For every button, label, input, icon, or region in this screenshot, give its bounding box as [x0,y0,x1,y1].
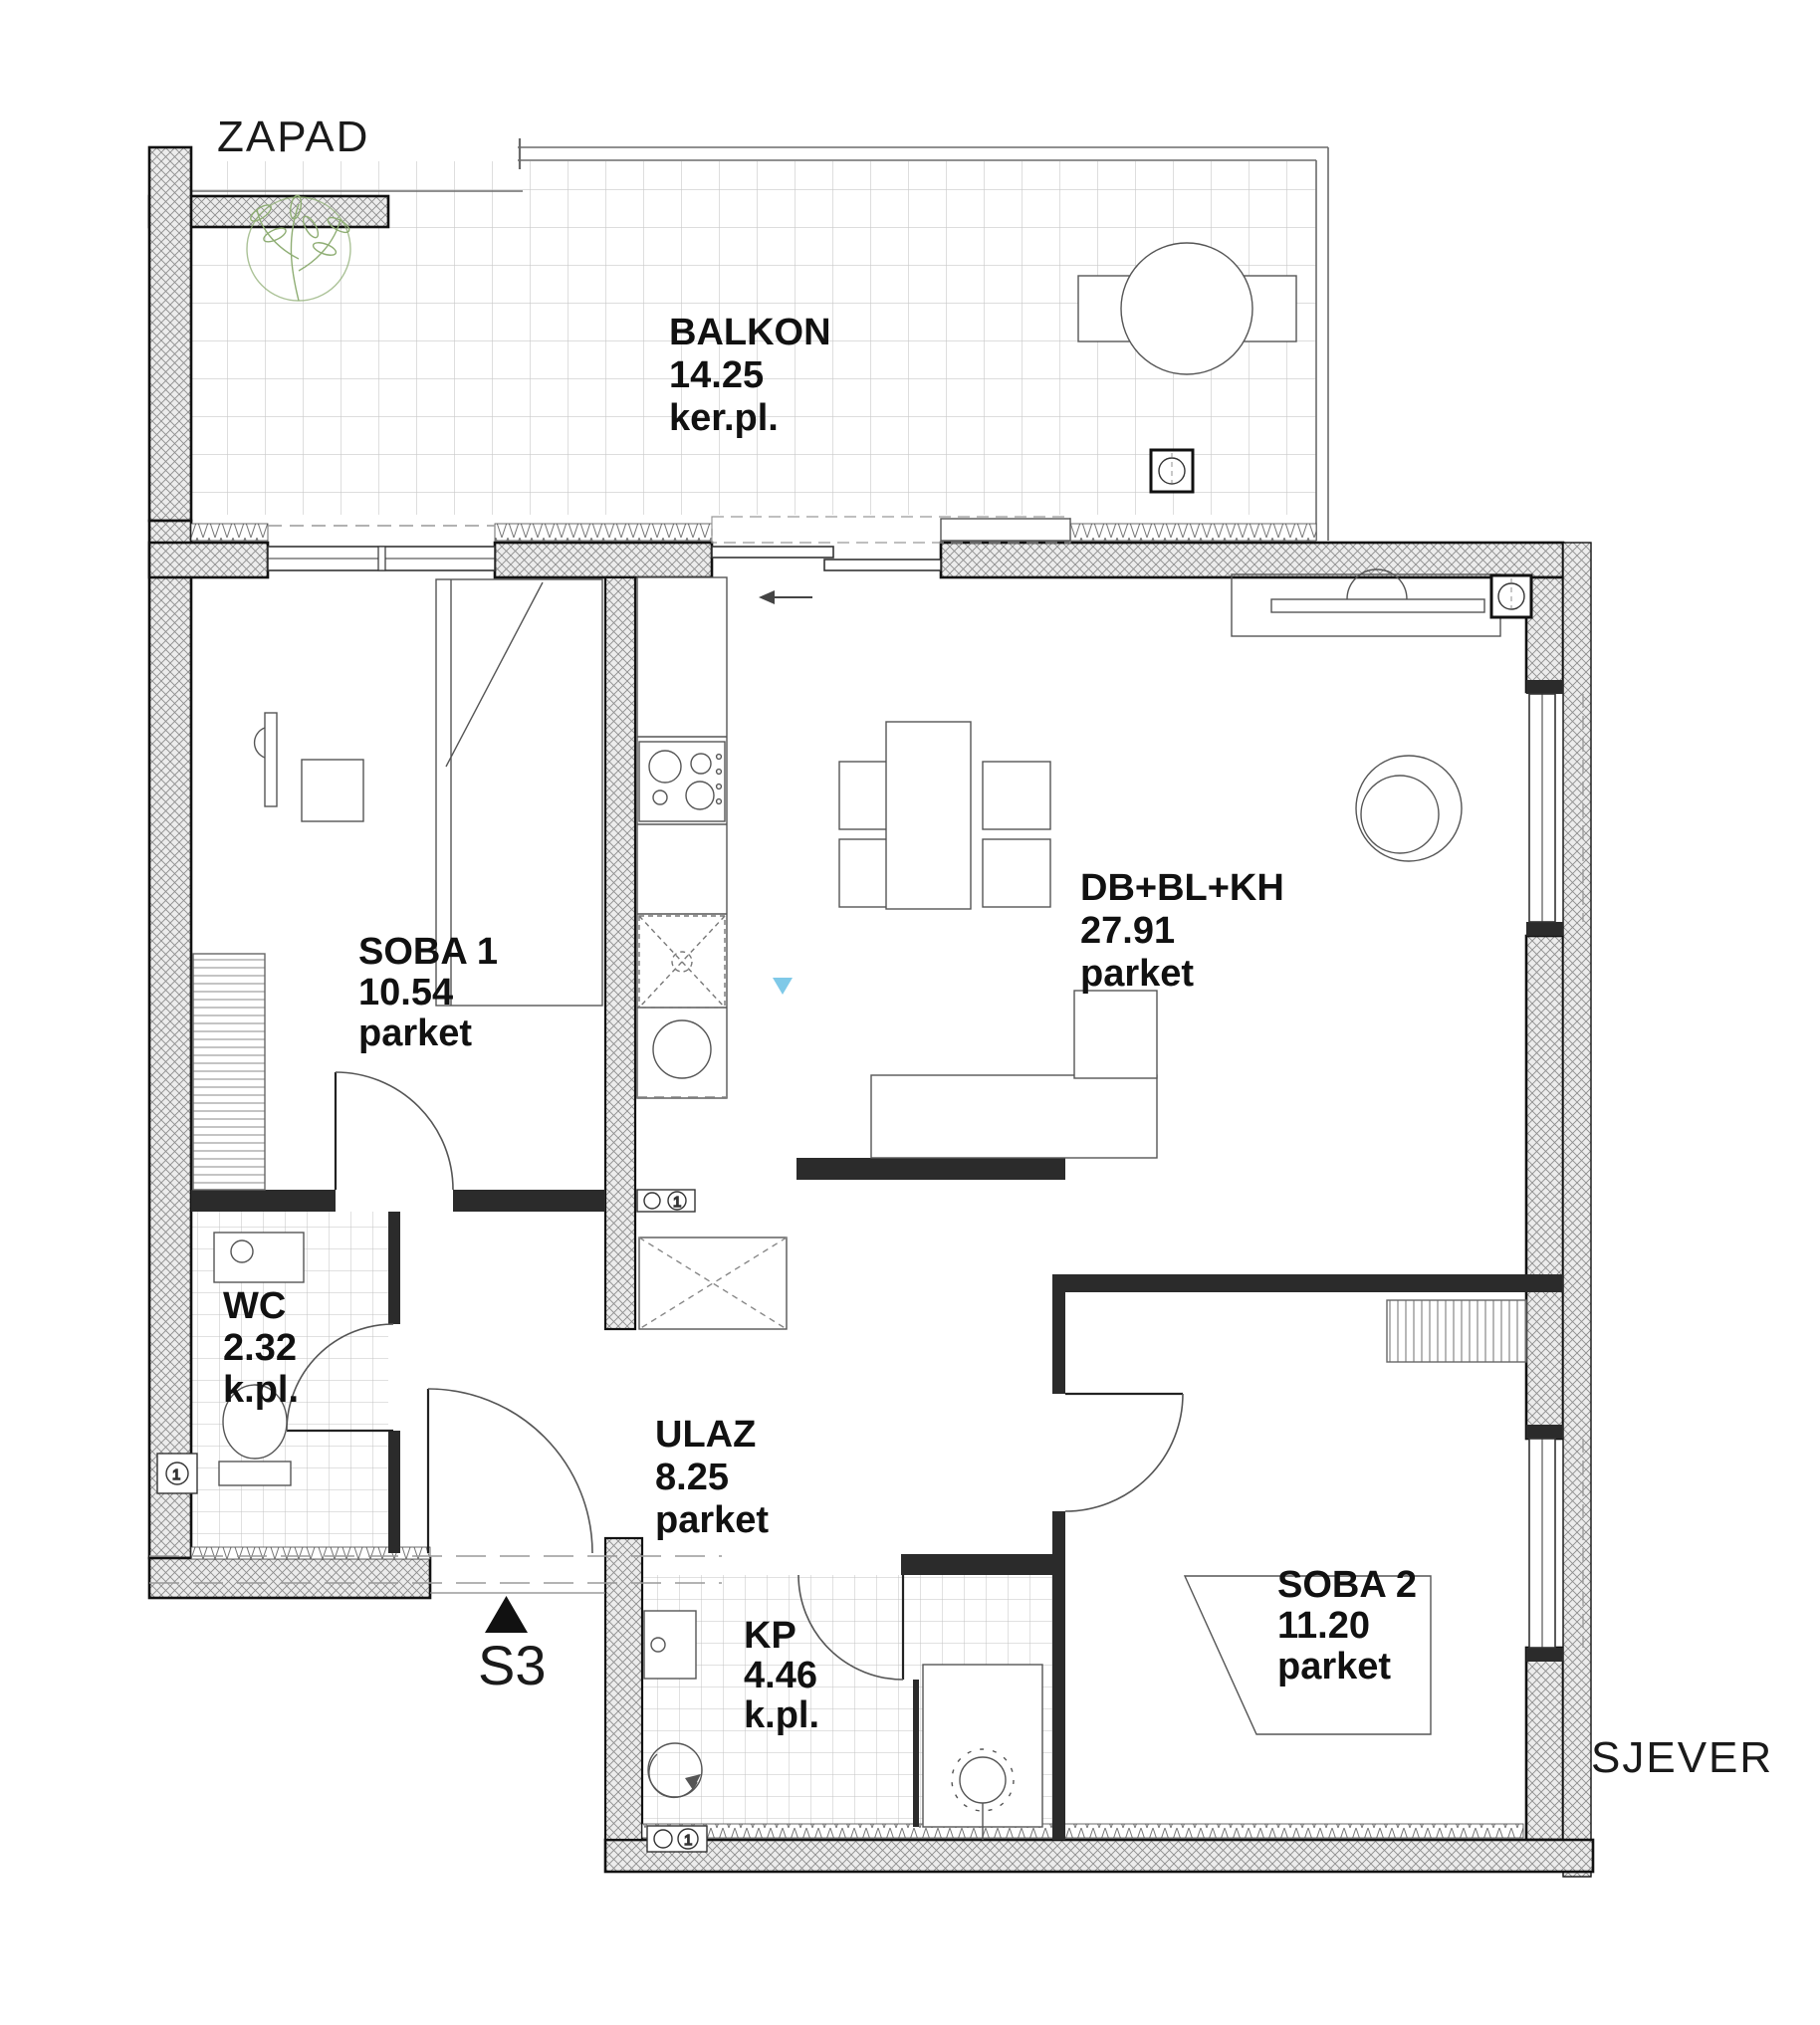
svg-text:parket: parket [1277,1646,1391,1687]
floor-plan-drawing: 1 [0,0,1820,2025]
svg-text:2.32: 2.32 [223,1327,297,1369]
svg-text:11.20: 11.20 [1277,1605,1370,1647]
east-wall-seg3 [1526,1648,1563,1840]
soba1-furniture [193,579,602,1190]
desk-and-chair [255,713,363,821]
west-wall [149,521,191,1558]
south-wall [605,1840,1593,1872]
svg-text:27.91: 27.91 [1080,910,1175,952]
svg-text:DB+BL+KH: DB+BL+KH [1080,867,1284,909]
north-wall-seg2 [495,543,712,577]
armchair [1356,756,1462,861]
soba1-south-wall-b [453,1190,605,1212]
dining-set [839,722,1050,909]
soba2-north-wall [1052,1274,1563,1292]
soba1-door [336,1072,453,1190]
entry-marker-blue-triangle [773,978,793,995]
soba1-south-wall-a [191,1190,336,1212]
svg-text:BALKON: BALKON [669,312,831,353]
svg-text:14.25: 14.25 [669,354,764,396]
shower-icon [923,1665,1042,1840]
section-arrow-icon [485,1596,528,1633]
east-wall-seg2 [1526,936,1563,1439]
wardrobe-soba2 [1387,1300,1526,1362]
svg-text:k.pl.: k.pl. [223,1369,299,1411]
kitchen: 1 [637,577,727,1212]
north-wall-seg3 [941,543,1563,577]
wc-east-wall-a [388,1212,400,1324]
electrical-box-kitchen: 1 [637,1190,695,1212]
sofa [871,991,1157,1158]
svg-text:KP: KP [744,1615,796,1657]
svg-text:parket: parket [655,1499,769,1541]
svg-text:4.46: 4.46 [744,1655,817,1696]
balcony-drain-box [1151,450,1193,492]
washbasin-cabinet [644,1611,696,1679]
svg-text:parket: parket [1080,953,1194,995]
orientation-west-label: ZAPAD [217,112,369,161]
living-south-wall [796,1158,1065,1180]
floor-plan-page: 1 [0,0,1820,2025]
orientation-north-label: SJEVER [1591,1733,1773,1782]
wc-east-wall-b [388,1431,400,1553]
section-marker-label: S3 [478,1634,547,1696]
svg-text:parket: parket [358,1012,472,1054]
wardrobe-soba1 [193,954,265,1190]
entrance-door [428,1389,605,1593]
dining-table [886,722,971,909]
svg-text:1: 1 [172,1466,180,1483]
shower-partition [913,1680,919,1827]
svg-text:ker.pl.: ker.pl. [669,397,779,439]
svg-text:1: 1 [673,1194,681,1211]
svg-text:SOBA 1: SOBA 1 [358,931,498,973]
east-facade-band [1563,543,1591,1877]
hall-closet-x-box [639,1237,787,1329]
svg-text:1: 1 [684,1832,692,1849]
wc-sink-icon [214,1233,304,1282]
svg-text:8.25: 8.25 [655,1457,729,1498]
soba2-west-wall-a [1052,1292,1065,1394]
balcony-round-table [1121,243,1252,374]
section-marker: S3 [478,1596,547,1696]
svg-text:ULAZ: ULAZ [655,1414,756,1456]
svg-text:SOBA 2: SOBA 2 [1277,1564,1417,1606]
kp-north-wall [901,1554,1052,1575]
svg-text:10.54: 10.54 [358,972,453,1013]
label-db-bl-kh: DB+BL+KH 27.91 parket [1080,867,1284,995]
svg-text:WC: WC [223,1285,286,1327]
slide-direction-arrow [759,590,812,604]
balcony-left-wall [149,147,191,521]
soba2-door [1065,1394,1183,1511]
north-wall-seg1 [149,543,268,577]
soba2-west-wall-b [1052,1511,1065,1840]
svg-text:k.pl.: k.pl. [744,1694,819,1736]
sideboard [1232,569,1500,636]
electrical-box-kp: 1 [647,1826,707,1852]
electrical-box-wc: 1 [157,1454,197,1493]
soba1-window [268,526,495,570]
southwest-wall [149,1558,430,1598]
vent-box [1491,575,1531,617]
kitchen-hall-wall [605,577,635,1329]
label-ulaz: ULAZ 8.25 parket [655,1414,769,1541]
